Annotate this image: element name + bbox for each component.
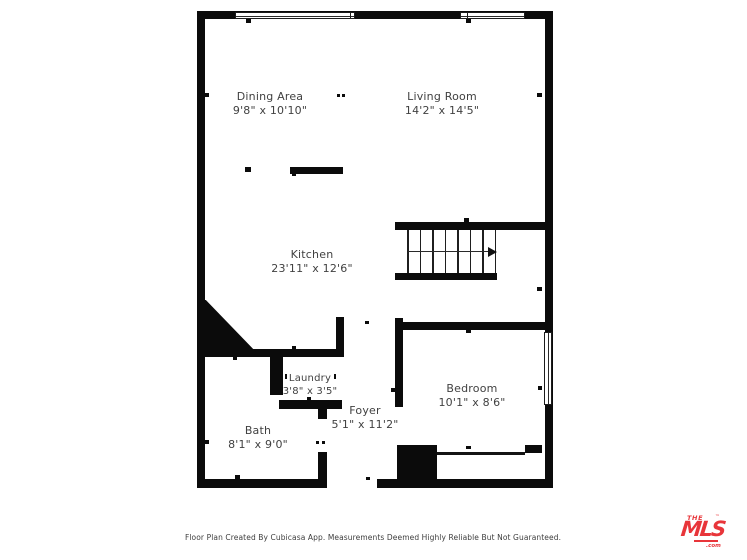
- room-name: Kitchen: [271, 248, 352, 262]
- room-name: Laundry: [283, 372, 338, 385]
- room-label-living-room: Living Room 14'2" x 14'5": [405, 90, 479, 118]
- door-marker: [285, 374, 287, 379]
- wall-stairs-top: [395, 222, 545, 230]
- door-marker: [316, 441, 319, 444]
- wall-stairs-bottom: [395, 273, 497, 280]
- door-marker: [366, 477, 370, 480]
- door-marker: [537, 93, 542, 97]
- wall-outer-bottom-left: [197, 479, 325, 488]
- room-label-dining-area: Dining Area 9'8" x 10'10": [233, 90, 307, 118]
- room-dimensions: 9'8" x 10'10": [233, 104, 307, 118]
- room-dimensions: 10'1" x 8'6": [438, 396, 505, 410]
- door-marker: [292, 173, 296, 176]
- door-marker: [466, 446, 471, 449]
- door-marker: [337, 94, 340, 97]
- wall-bedroom-left: [395, 318, 403, 407]
- footer-disclaimer: Floor Plan Created By Cubicasa App. Meas…: [185, 533, 561, 542]
- wall-bedroom-bottom-right: [525, 445, 542, 453]
- door-marker: [245, 167, 251, 172]
- window-pane-line: [461, 16, 524, 17]
- door-marker: [246, 19, 251, 23]
- room-dimensions: 23'11" x 12'6": [271, 262, 352, 276]
- window-divider: [467, 13, 468, 18]
- door-marker: [322, 441, 325, 444]
- door-marker: [538, 386, 542, 390]
- wall-laundry-left: [270, 349, 283, 395]
- room-name: Living Room: [405, 90, 479, 104]
- door-marker: [466, 19, 471, 23]
- window-dining: [235, 12, 355, 19]
- door-marker: [365, 321, 369, 324]
- window-pane-line: [548, 333, 549, 404]
- mls-logo-mls: MLS: [680, 517, 726, 541]
- window-divider: [350, 13, 351, 18]
- wall-block-foyer-bottom: [397, 445, 437, 483]
- wall-bath-right-upper: [318, 409, 327, 419]
- room-name: Bedroom: [438, 382, 505, 396]
- door-marker: [205, 440, 209, 444]
- window-pane-line: [236, 16, 354, 17]
- wall-bath-right-lower: [318, 452, 327, 488]
- floorplan-canvas: Dining Area 9'8" x 10'10" Living Room 14…: [0, 0, 747, 560]
- door-marker: [307, 397, 311, 400]
- room-label-bath: Bath 8'1" x 9'0": [228, 424, 288, 452]
- kitchen-counter-bar: [290, 167, 343, 174]
- room-dimensions: 8'1" x 9'0": [228, 438, 288, 452]
- mls-logo-com: .com: [706, 543, 721, 549]
- wall-outer-left: [197, 11, 205, 488]
- room-label-laundry: Laundry 3'8" x 3'5": [283, 372, 338, 398]
- room-label-kitchen: Kitchen 23'11" x 12'6": [271, 248, 352, 276]
- room-label-bedroom: Bedroom 10'1" x 8'6": [438, 382, 505, 410]
- door-marker: [235, 475, 240, 479]
- wall-outer-right: [545, 11, 553, 488]
- door-marker: [334, 374, 336, 379]
- stair-direction-arrow-icon: [488, 247, 497, 257]
- door-marker: [233, 357, 237, 360]
- room-dimensions: 14'2" x 14'5": [405, 104, 479, 118]
- mls-logo: THE ™ MLS .com: [681, 512, 727, 552]
- wall-diagonal-kitchen: [197, 300, 256, 357]
- wall-laundry-bottom: [279, 400, 342, 409]
- window-bedroom: [544, 332, 552, 405]
- wall-bedroom-top: [395, 322, 545, 330]
- room-name: Bath: [228, 424, 288, 438]
- stair-direction-line: [408, 251, 489, 252]
- door-marker: [464, 218, 469, 222]
- door-marker: [537, 287, 542, 291]
- closet-front-line: [437, 452, 525, 455]
- window-living: [460, 12, 525, 19]
- room-name: Dining Area: [233, 90, 307, 104]
- wall-foyer-left-upper: [336, 317, 344, 357]
- door-marker: [466, 330, 471, 333]
- door-marker: [292, 346, 296, 349]
- door-marker: [391, 388, 395, 392]
- room-dimensions: 5'1" x 11'2": [331, 418, 398, 432]
- door-marker: [342, 94, 345, 97]
- door-marker: [205, 93, 209, 97]
